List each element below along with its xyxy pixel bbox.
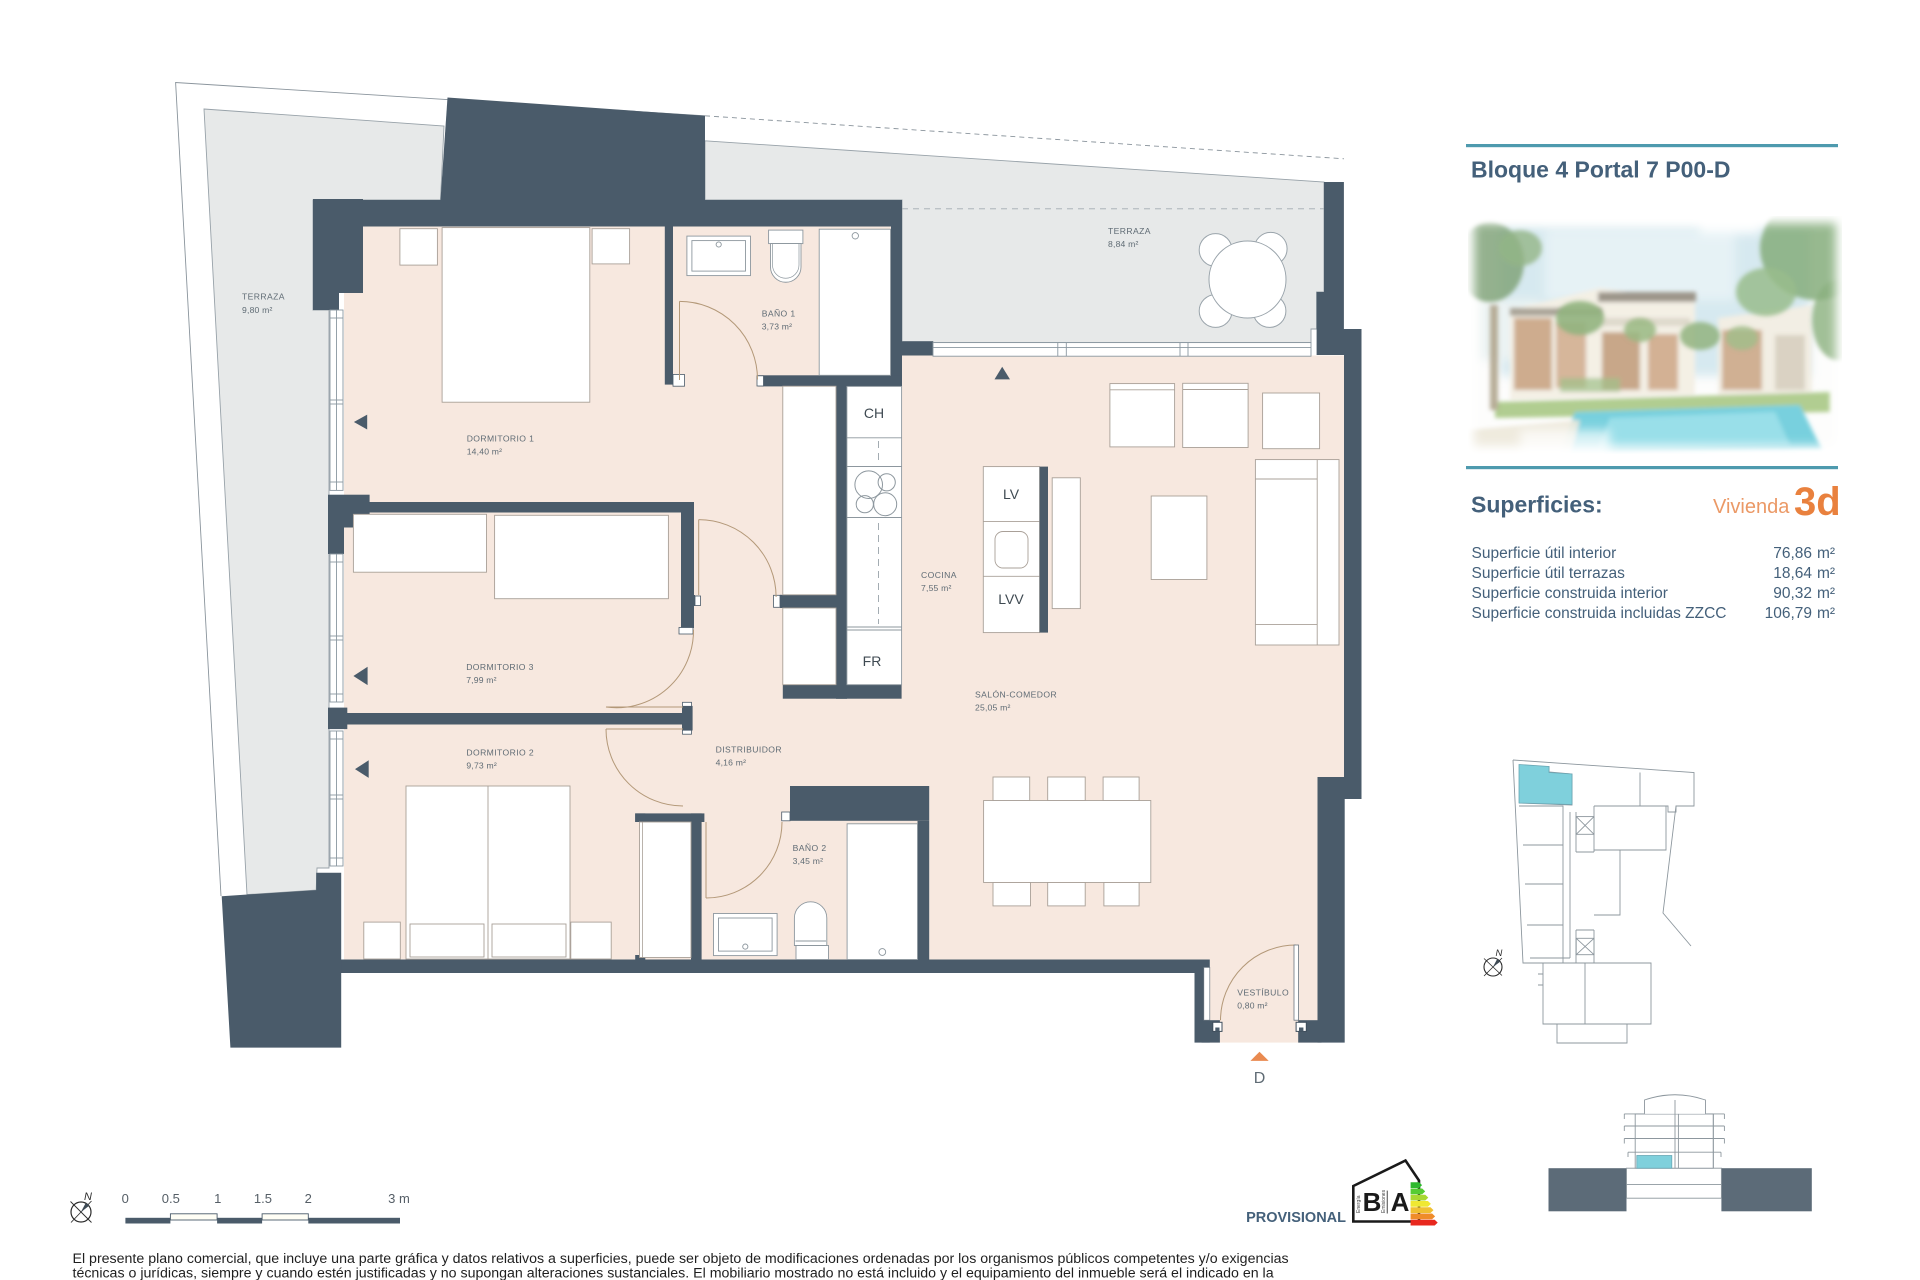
svg-text:3,73 m²: 3,73 m² [762,322,793,332]
svg-text:técnicas o jurídicas, siempre: técnicas o jurídicas, siempre y cuando e… [73,1266,1274,1280]
svg-text:1: 1 [214,1191,221,1206]
svg-text:N: N [84,1191,92,1203]
svg-text:3 m: 3 m [388,1191,410,1206]
svg-text:3d: 3d [1794,480,1841,524]
svg-text:Superficie útil interior: Superficie útil interior [1472,545,1617,562]
svg-text:BAÑO 1: BAÑO 1 [762,309,796,319]
svg-text:PROVISIONAL: PROVISIONAL [1246,1210,1346,1226]
svg-text:9,80 m²: 9,80 m² [242,305,273,315]
svg-text:76,86: 76,86 [1773,545,1812,562]
svg-text:106,79: 106,79 [1765,605,1812,622]
svg-text:9,73 m²: 9,73 m² [466,761,497,771]
svg-text:14,40 m²: 14,40 m² [467,447,503,457]
svg-text:18,64: 18,64 [1773,565,1812,582]
svg-text:0: 0 [122,1191,129,1206]
svg-text:Emisiones: Emisiones [1381,1189,1387,1213]
svg-text:m²: m² [1817,605,1835,622]
svg-text:Superficie construida incluida: Superficie construida incluidas ZZCC [1472,605,1727,622]
svg-text:3,45 m²: 3,45 m² [793,856,824,866]
svg-text:m²: m² [1817,565,1835,582]
svg-text:TERRAZA: TERRAZA [1108,226,1151,236]
svg-text:COCINA: COCINA [921,570,957,580]
svg-text:7,55 m²: 7,55 m² [921,583,952,593]
svg-text:CH: CH [864,405,884,421]
svg-text:Superficie construida interior: Superficie construida interior [1472,585,1668,602]
svg-text:2: 2 [305,1191,312,1206]
svg-text:Superficie útil terrazas: Superficie útil terrazas [1472,565,1626,582]
svg-text:B: B [1363,1187,1382,1217]
svg-text:DORMITORIO 2: DORMITORIO 2 [466,748,534,758]
svg-text:1.5: 1.5 [254,1191,272,1206]
svg-text:LVV: LVV [998,591,1024,607]
svg-text:7,99 m²: 7,99 m² [466,675,497,685]
svg-text:D: D [1254,1070,1266,1087]
svg-text:m²: m² [1817,585,1835,602]
svg-text:0.5: 0.5 [162,1191,180,1206]
svg-text:DORMITORIO 3: DORMITORIO 3 [466,662,534,672]
svg-text:m²: m² [1817,545,1835,562]
svg-text:Bloque 4 Portal 7 P00-D: Bloque 4 Portal 7 P00-D [1471,157,1730,183]
svg-text:Energía: Energía [1356,1195,1362,1213]
svg-text:TERRAZA: TERRAZA [242,292,285,302]
svg-text:25,05 m²: 25,05 m² [975,703,1011,713]
svg-text:DISTRIBUIDOR: DISTRIBUIDOR [716,745,782,755]
svg-text:Vivienda: Vivienda [1713,496,1790,518]
svg-text:BAÑO 2: BAÑO 2 [793,843,827,853]
svg-text:4,16 m²: 4,16 m² [716,758,747,768]
svg-text:FR: FR [863,653,882,669]
svg-text:8,84 m²: 8,84 m² [1108,239,1139,249]
svg-text:Superficies:: Superficies: [1471,492,1603,518]
svg-text:VESTÍBULO: VESTÍBULO [1237,988,1289,998]
svg-text:A: A [1391,1187,1410,1217]
svg-text:90,32: 90,32 [1773,585,1812,602]
svg-text:DORMITORIO 1: DORMITORIO 1 [467,434,535,444]
svg-text:LV: LV [1003,486,1020,502]
svg-text:SALÓN-COMEDOR: SALÓN-COMEDOR [975,690,1057,700]
svg-text:0,80 m²: 0,80 m² [1237,1001,1268,1011]
svg-text:N: N [1496,948,1503,959]
